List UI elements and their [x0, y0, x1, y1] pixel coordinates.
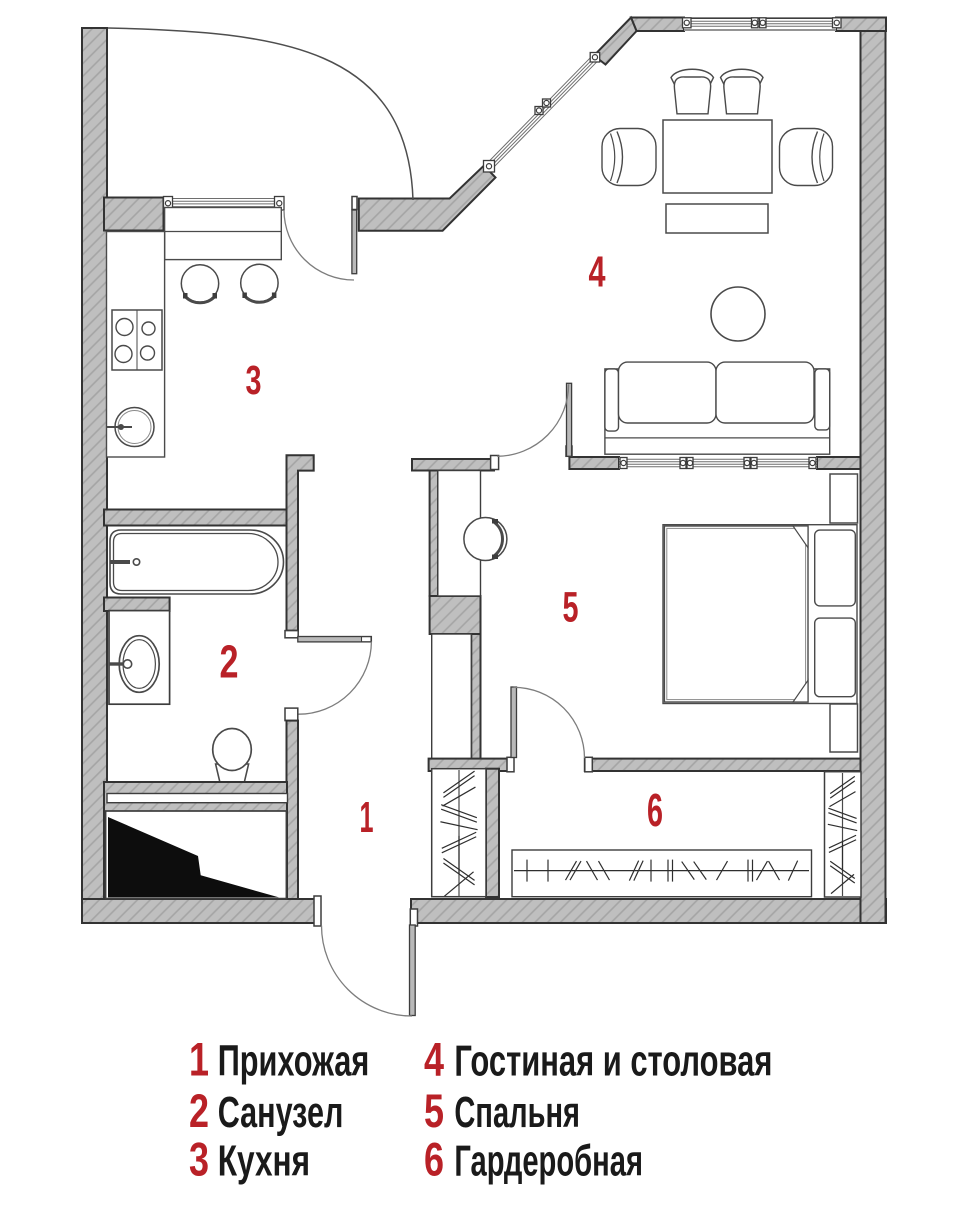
- svg-text:4: 4: [589, 248, 606, 297]
- svg-text:3: 3: [246, 357, 262, 403]
- svg-text:5: 5: [424, 1084, 444, 1137]
- svg-text:6: 6: [424, 1132, 444, 1185]
- svg-text:1: 1: [189, 1033, 209, 1086]
- svg-text:2: 2: [189, 1084, 209, 1137]
- svg-text:Гостиная и столовая: Гостиная и столовая: [454, 1037, 772, 1086]
- svg-text:3: 3: [189, 1132, 209, 1185]
- svg-text:2: 2: [220, 636, 239, 688]
- svg-text:Санузел: Санузел: [218, 1088, 344, 1137]
- svg-text:6: 6: [647, 784, 663, 836]
- svg-text:5: 5: [563, 584, 579, 632]
- svg-text:Кухня: Кухня: [218, 1136, 310, 1185]
- svg-text:Прихожая: Прихожая: [218, 1037, 370, 1086]
- svg-text:Спальня: Спальня: [454, 1088, 580, 1137]
- svg-text:1: 1: [360, 793, 374, 842]
- svg-text:Гардеробная: Гардеробная: [454, 1136, 643, 1185]
- svg-text:4: 4: [424, 1033, 444, 1086]
